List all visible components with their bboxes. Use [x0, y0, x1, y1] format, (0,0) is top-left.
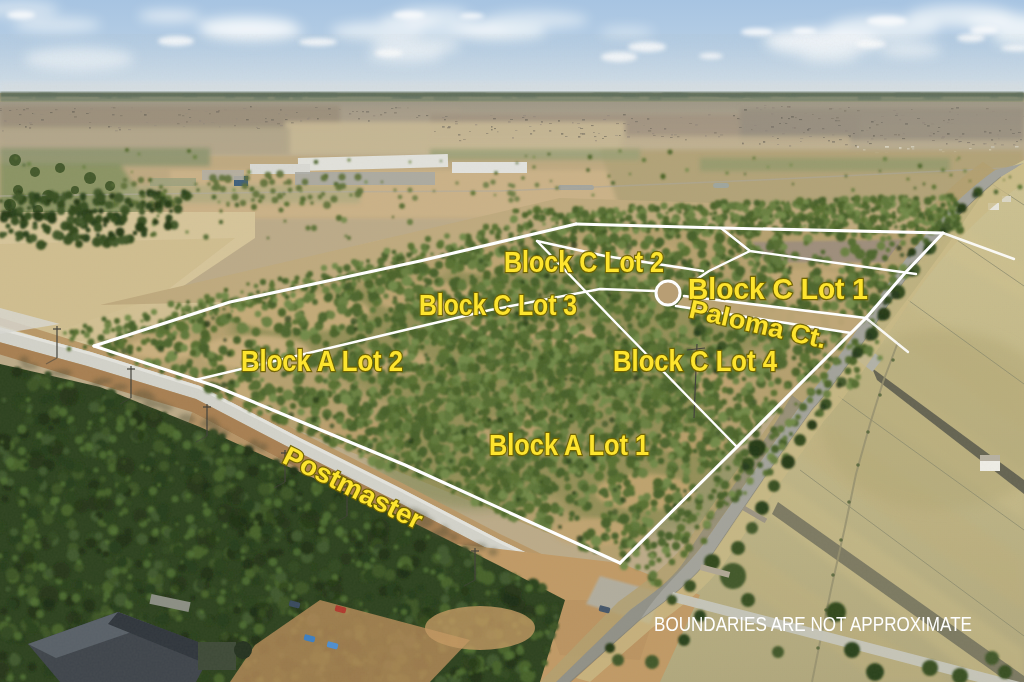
- svg-text:BOUNDARIES ARE NOT APPROXIMATE: BOUNDARIES ARE NOT APPROXIMATE: [654, 612, 972, 635]
- svg-text:Block A Lot 1: Block A Lot 1: [489, 429, 649, 461]
- svg-text:Block C Lot 4: Block C Lot 4: [613, 345, 777, 377]
- svg-text:Block C Lot 3: Block C Lot 3: [419, 289, 577, 321]
- svg-text:Block C Lot 2: Block C Lot 2: [504, 246, 664, 278]
- svg-text:Block A Lot 2: Block A Lot 2: [241, 345, 403, 377]
